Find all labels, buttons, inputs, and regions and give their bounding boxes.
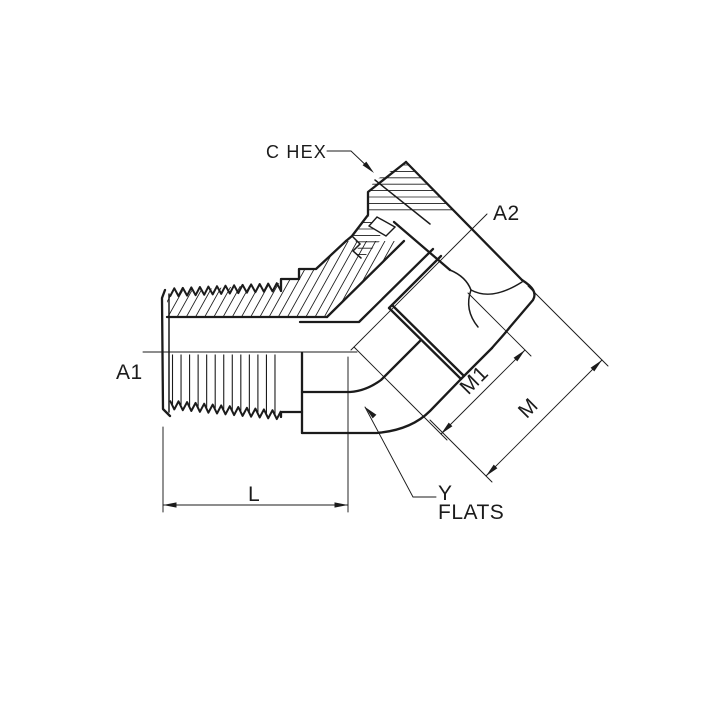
arrowheads [163,162,602,508]
dimension-lines [143,151,608,512]
leader-line-y-flats [365,407,436,497]
nut-gap-notch [369,217,395,236]
dimension-line-m1 [441,350,525,434]
thread-hatch-lines [130,219,517,352]
elbow-fitting-diagram: C HEX A2 A1 M1 M L Y FLATS [0,0,713,713]
thread-end-step [281,412,302,417]
nut-crown-edge [375,180,430,224]
label-c-hex: C HEX [266,142,327,162]
hex-corner-arc-1 [471,282,522,294]
elbow-inner-edge [302,341,420,392]
elbow-outer-edge [302,379,461,433]
extension-line-m-upper [528,286,608,366]
labels: C HEX A2 A1 M1 M L Y FLATS [116,142,543,524]
label-a1: A1 [116,361,143,384]
technical-drawing-page: C HEX A2 A1 M1 M L Y FLATS [0,0,713,713]
label-l: L [248,483,260,506]
extension-line-m1-upper [468,293,531,356]
thread-lines [170,283,281,419]
nut-seat-line [394,222,450,270]
sleeve-upper-edge [389,256,441,308]
nut-corner-bridge [450,270,471,290]
extension-line-m-lower [430,420,492,482]
label-flats: FLATS [438,501,504,524]
label-m: M [514,394,543,423]
arm-upper-edge [281,241,346,291]
dimension-line-m [486,360,602,476]
label-m1: M1 [456,362,494,400]
leader-line-c-hex [327,151,372,171]
label-a2: A2 [493,202,520,225]
washer-face [389,305,464,379]
